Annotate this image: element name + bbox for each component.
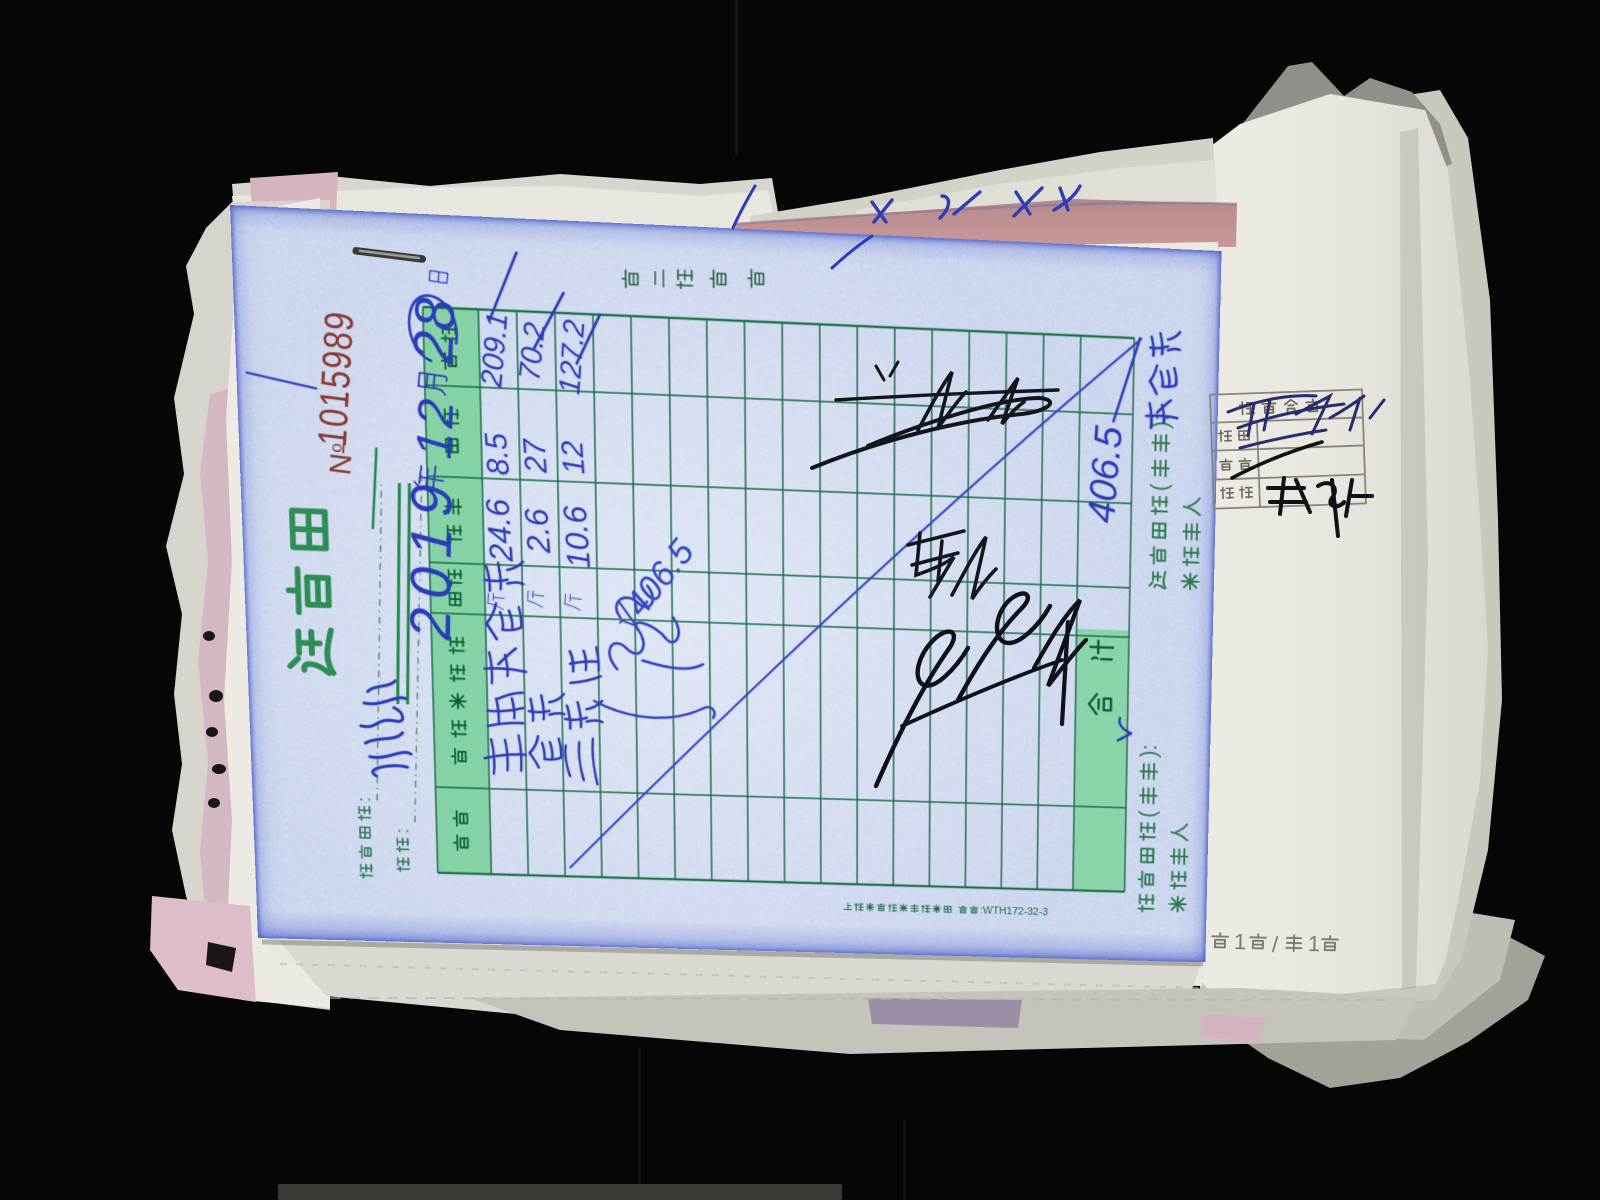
svg-text:1: 1 — [1308, 931, 1321, 956]
svg-text:/: / — [1272, 932, 1280, 957]
svg-text:1: 1 — [1234, 929, 1247, 954]
